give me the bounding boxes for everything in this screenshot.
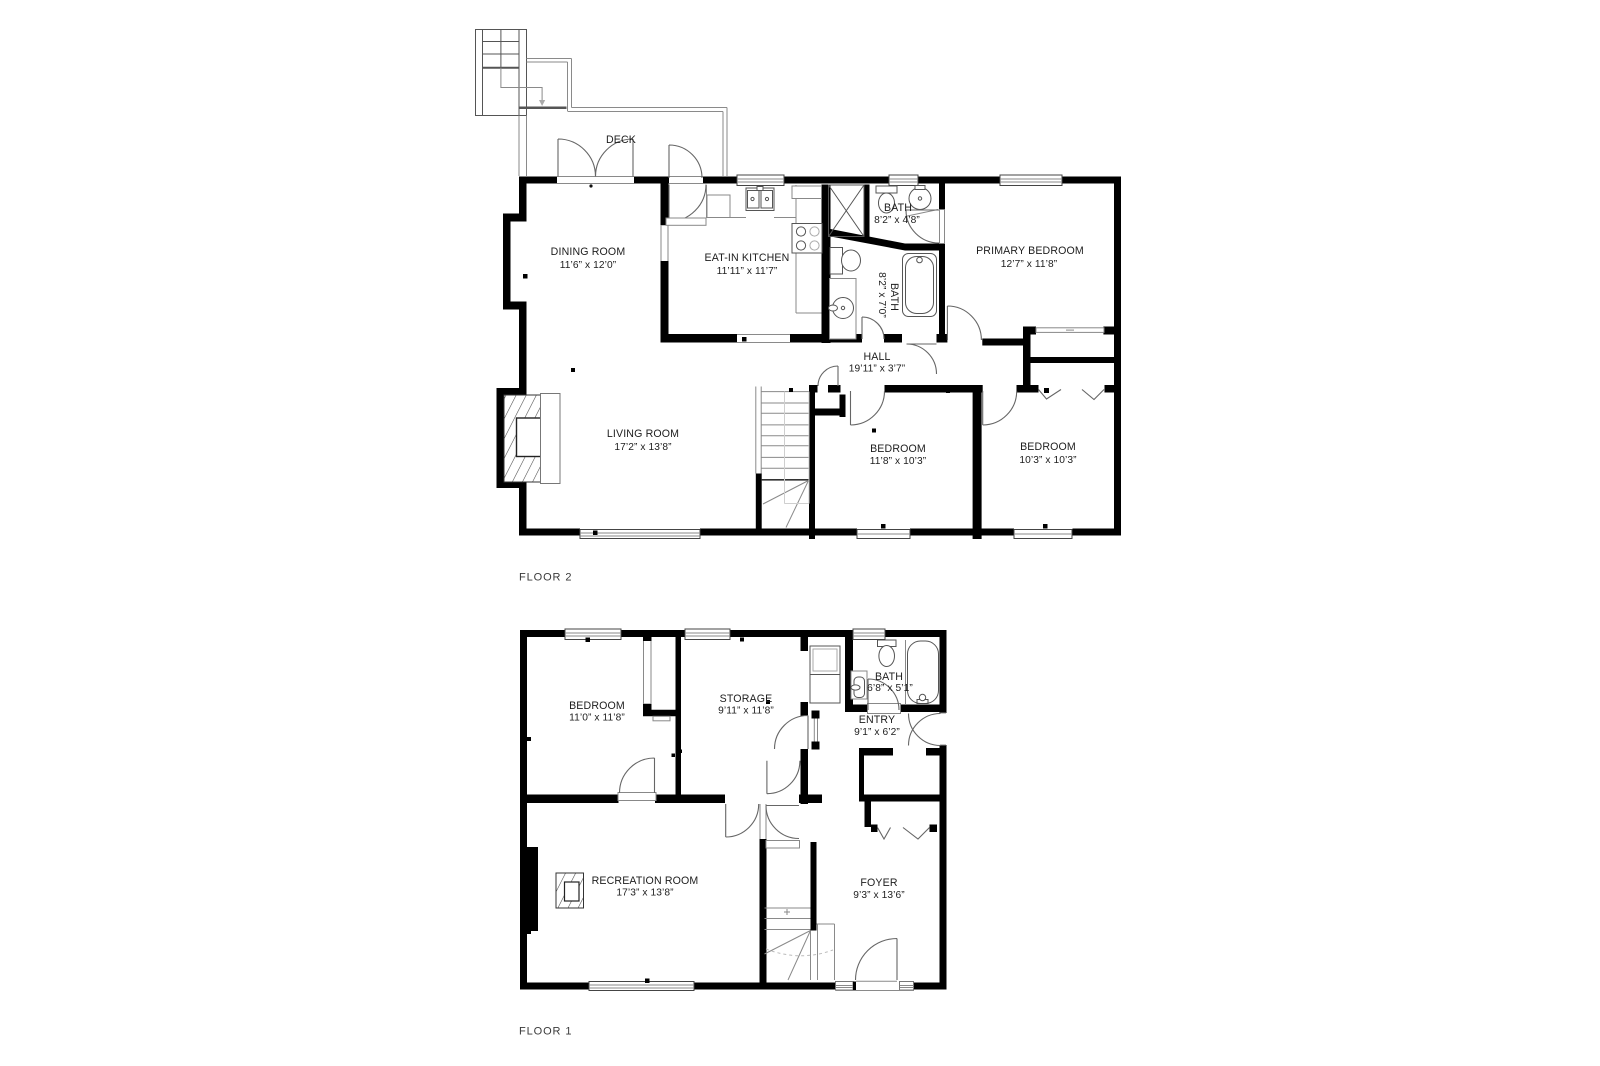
svg-text:8’2” x 7’0”: 8’2” x 7’0” [876,272,887,318]
svg-text:FLOOR 1: FLOOR 1 [519,1026,572,1038]
svg-text:9’1” x 6’2”: 9’1” x 6’2” [854,727,900,738]
svg-text:EAT-IN KITCHEN: EAT-IN KITCHEN [705,252,790,264]
svg-text:DINING ROOM: DINING ROOM [551,246,626,258]
svg-text:9’11” x 11’8”: 9’11” x 11’8” [718,706,774,717]
svg-text:BEDROOM: BEDROOM [569,700,625,712]
svg-text:10’3” x 10’3”: 10’3” x 10’3” [1019,455,1077,466]
svg-text:FLOOR 2: FLOOR 2 [519,572,572,584]
svg-text:17’3” x 13’8”: 17’3” x 13’8” [616,888,674,899]
svg-text:11’6” x 12’0”: 11’6” x 12’0” [560,260,617,271]
svg-text:ENTRY: ENTRY [859,714,895,726]
svg-text:19’11” x 3’7”: 19’11” x 3’7” [849,364,906,375]
svg-text:FOYER: FOYER [860,877,897,889]
svg-text:BATH: BATH [884,202,912,214]
svg-text:11’0” x 11’8”: 11’0” x 11’8” [569,713,625,724]
svg-text:HALL: HALL [863,351,890,363]
svg-text:DECK: DECK [606,134,636,146]
svg-text:17’2” x 13’8”: 17’2” x 13’8” [614,442,672,453]
svg-text:BEDROOM: BEDROOM [870,443,926,455]
svg-text:BATH: BATH [875,671,903,683]
svg-text:STORAGE: STORAGE [720,693,773,705]
svg-text:RECREATION ROOM: RECREATION ROOM [592,875,699,887]
svg-text:12’7” x 11’8”: 12’7” x 11’8” [1001,259,1058,270]
svg-text:PRIMARY BEDROOM: PRIMARY BEDROOM [976,245,1084,257]
svg-text:BEDROOM: BEDROOM [1020,441,1076,453]
svg-text:8’2” x 4’8”: 8’2” x 4’8” [874,215,920,226]
svg-text:LIVING ROOM: LIVING ROOM [607,428,679,440]
svg-text:BATH: BATH [888,283,900,311]
svg-text:6’8” x 5’1”: 6’8” x 5’1” [867,683,913,694]
svg-text:9’3” x 13’6”: 9’3” x 13’6” [853,890,905,901]
svg-text:11’11” x 11’7”: 11’11” x 11’7” [717,266,778,277]
svg-text:11’8” x 10’3”: 11’8” x 10’3” [870,456,927,467]
